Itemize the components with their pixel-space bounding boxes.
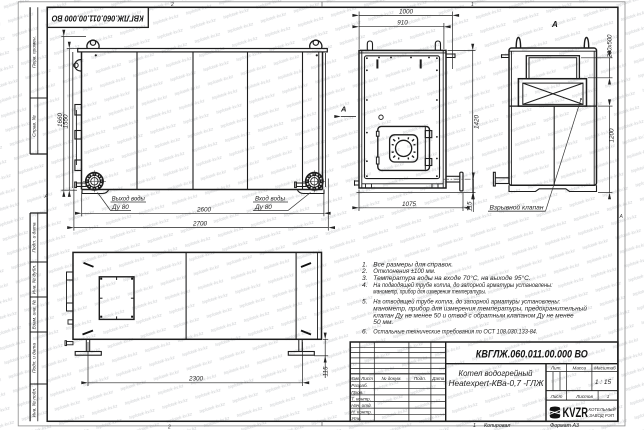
- svg-text:Утв.: Утв.: [351, 416, 361, 421]
- svg-text:На подводящей трубе котла, до: На подводящей трубе котла, до запорной а…: [373, 281, 553, 289]
- svg-text:Heatexpert-КВа-0,7 -ГЛЖ: Heatexpert-КВа-0,7 -ГЛЖ: [449, 379, 545, 388]
- svg-text:Дата: Дата: [431, 376, 445, 381]
- svg-text:1 : 15: 1 : 15: [595, 379, 612, 386]
- svg-text:2700: 2700: [192, 221, 208, 228]
- svg-text:Т. контр.: Т. контр.: [351, 396, 371, 401]
- svg-text:2300: 2300: [188, 375, 204, 382]
- svg-text:Вход воды: Вход воды: [255, 194, 285, 202]
- svg-text:А: А: [44, 194, 49, 200]
- svg-text:Температура воды на входе 70°С: Температура воды на входе 70°С, на выход…: [373, 274, 531, 282]
- svg-text:Копировал: Копировал: [484, 423, 510, 429]
- svg-text:910: 910: [397, 20, 408, 27]
- svg-text:2600: 2600: [196, 206, 212, 213]
- svg-text:На отводящей трубе котла, до з: На отводящей трубе котла, до запорной ар…: [373, 298, 560, 306]
- svg-text:Ду 80: Ду 80: [254, 204, 272, 211]
- svg-text:Выход воды: Выход воды: [112, 194, 145, 202]
- svg-text:Листов: Листов: [575, 394, 593, 399]
- svg-text:Масса: Масса: [573, 366, 587, 371]
- svg-text:А: А: [619, 214, 624, 220]
- svg-text:2: 2: [167, 424, 171, 430]
- svg-text:4.: 4.: [362, 282, 368, 289]
- svg-text:КВГЛЖ.060.011.00.000 ВО: КВГЛЖ.060.011.00.000 ВО: [476, 349, 588, 361]
- svg-text:Пров.: Пров.: [351, 390, 363, 395]
- svg-text:5.: 5.: [362, 299, 368, 306]
- svg-text:Котел водогрейный: Котел водогрейный: [459, 369, 534, 378]
- svg-text:Подп.: Подп.: [414, 376, 426, 381]
- svg-text:Справ. №: Справ. №: [32, 115, 38, 137]
- svg-text:А: А: [551, 20, 558, 29]
- svg-text:ЗАВОД РЭП: ЗАВОД РЭП: [589, 413, 615, 418]
- svg-text:1550: 1550: [63, 114, 70, 129]
- svg-text:Лист: Лист: [550, 394, 563, 399]
- svg-text:Подп. и дата: Подп. и дата: [32, 343, 38, 373]
- svg-text:Масштаб: Масштаб: [594, 366, 616, 371]
- svg-text:Н. контр.: Н. контр.: [351, 410, 372, 415]
- svg-text:КОТЕЛЬНЫЙ: КОТЕЛЬНЫЙ: [588, 407, 616, 412]
- svg-text:А: А: [340, 105, 346, 114]
- svg-text:Ду 80: Ду 80: [111, 204, 129, 211]
- svg-text:Лит.: Лит.: [550, 366, 562, 371]
- svg-text:манометр, прибор для измерения: манометр, прибор для измерения температу…: [373, 288, 486, 296]
- svg-text:1: 1: [473, 423, 476, 429]
- svg-text:1420: 1420: [473, 115, 480, 130]
- svg-text:КВГЛЖ.060.011.00.000 ВО: КВГЛЖ.060.011.00.000 ВО: [51, 13, 144, 22]
- svg-text:1: 1: [471, 2, 474, 8]
- svg-text:Взам. инв. №: Взам. инв. №: [32, 300, 38, 330]
- svg-text:Нач. отд.: Нач. отд.: [351, 403, 372, 408]
- svg-text:Формат А3: Формат А3: [550, 423, 579, 429]
- svg-text:Остальные технические требован: Остальные технические требования по ОСТ …: [373, 327, 537, 335]
- svg-text:Инв. № дубл.: Инв. № дубл.: [32, 265, 38, 295]
- svg-text:1075: 1075: [402, 201, 417, 208]
- svg-text:1: 1: [607, 394, 610, 399]
- svg-text:Все размеры для справок.: Все размеры для справок.: [373, 260, 453, 268]
- svg-text:6.: 6.: [362, 328, 368, 335]
- svg-text:Разраб.: Разраб.: [351, 383, 368, 388]
- svg-text:Подп. и дата: Подп. и дата: [32, 222, 38, 252]
- svg-text:№ докум.: № докум.: [381, 376, 401, 381]
- svg-text:1000: 1000: [399, 8, 414, 15]
- svg-text:Лист: Лист: [360, 376, 373, 381]
- svg-text:2: 2: [170, 2, 174, 8]
- svg-text:клапан Ду не менее 50 и отвод: клапан Ду не менее 50 и отвод с обратным…: [373, 311, 574, 319]
- svg-text:Перв. примен.: Перв. примен.: [32, 36, 38, 68]
- svg-text:50 мм.: 50 мм.: [373, 319, 393, 326]
- svg-text:манометр, прибор для измерения: манометр, прибор для измерения температу…: [373, 305, 587, 313]
- svg-text:115: 115: [323, 366, 330, 377]
- svg-text:Изм.: Изм.: [350, 376, 360, 381]
- svg-text:Взрывной клапан: Взрывной клапан: [490, 204, 544, 212]
- svg-text:1200: 1200: [609, 128, 616, 143]
- svg-text:115: 115: [467, 201, 474, 212]
- svg-text:200х500: 200х500: [608, 34, 614, 59]
- svg-text:Инв. № подл.: Инв. № подл.: [32, 388, 38, 418]
- svg-text:KVZR: KVZR: [563, 405, 589, 420]
